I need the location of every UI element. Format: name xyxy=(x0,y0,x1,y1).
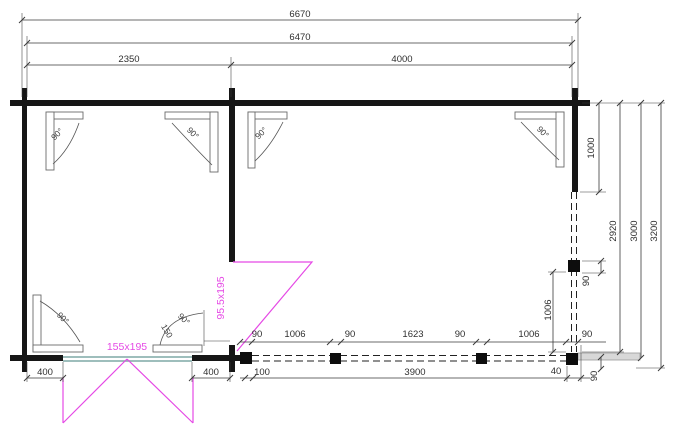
wall-interior-top-stub xyxy=(229,88,235,100)
wall-bottom-a xyxy=(22,355,63,361)
dim-label-edge-40: 40 xyxy=(551,366,562,377)
swing-radius-label: 150 xyxy=(159,322,175,340)
dim-label-depth-2920: 2920 xyxy=(608,220,619,241)
porch-post-corner xyxy=(566,353,578,365)
dim-label-post-90: 90 xyxy=(581,276,592,287)
dim-label-right-room-width: 4000 xyxy=(391,54,412,65)
dim-label-400-left: 400 xyxy=(37,367,53,378)
door-swings xyxy=(63,262,312,423)
deck-edge-bar xyxy=(578,353,640,360)
window-swing-bottom-left xyxy=(33,295,83,352)
dim-label-100: 100 xyxy=(254,367,270,378)
dimension-ticks xyxy=(19,17,664,381)
double-door-swing xyxy=(63,359,193,423)
wall-bottomleft-stub-h xyxy=(10,355,22,361)
door-labels: 155x195 95.5x195 xyxy=(107,276,227,353)
porch-post-right xyxy=(568,260,580,272)
wall-right-top-stub xyxy=(572,88,578,100)
dim-label-right-1006: 1006 xyxy=(543,299,554,320)
window-swing-indicators xyxy=(33,112,564,352)
dim-label-chain-2: 90 xyxy=(345,329,356,340)
porch-posts xyxy=(240,260,580,365)
window-swing-right-room-right xyxy=(515,112,564,167)
dim-label-depth-3200: 3200 xyxy=(649,220,660,241)
dim-label-chain-4: 90 xyxy=(455,329,466,340)
window-swing-left-room-right xyxy=(165,112,218,172)
dim-label-chain-6: 90 xyxy=(582,329,593,340)
porch-post xyxy=(330,353,341,364)
window-swing-right-room-left xyxy=(248,112,287,168)
dim-label-left-room-width: 2350 xyxy=(118,54,139,65)
angle-labels: 90° 90° 90° 90° 90° 90° 150 xyxy=(49,124,551,340)
window-swing-top-left xyxy=(46,112,83,170)
porch-post xyxy=(240,352,252,364)
dimension-lines xyxy=(22,20,661,378)
wall-left xyxy=(22,100,27,361)
dim-label-depth-3000: 3000 xyxy=(629,220,640,241)
dim-label-chain-3: 1623 xyxy=(402,329,423,340)
angle-label-left-room-right: 90° xyxy=(185,125,201,141)
dim-label-chain-1: 1006 xyxy=(284,329,305,340)
dim-label-3900: 3900 xyxy=(404,367,425,378)
floor-plan-drawing: 6670 6470 2350 4000 1000 2920 3000 3200 … xyxy=(0,0,680,430)
wall-bottomleft-stub-v xyxy=(22,361,27,372)
angle-label-right-room-right: 90° xyxy=(535,124,551,140)
double-door-size-label: 155x195 xyxy=(107,341,147,353)
dim-label-right-wall-1000: 1000 xyxy=(586,137,597,158)
angle-label-bottom-left: 90° xyxy=(55,310,71,326)
dim-label-400-right: 400 xyxy=(203,367,219,378)
single-door-size-label: 95.5x195 xyxy=(215,276,227,319)
dim-label-frame-width: 6470 xyxy=(289,32,310,43)
wall-interior-upper xyxy=(229,100,235,262)
dim-label-chain-5: 1006 xyxy=(518,329,539,340)
angle-label-interior-door: 90° xyxy=(176,311,192,327)
dim-label-overall-width: 6670 xyxy=(289,9,310,20)
extension-lines xyxy=(22,13,665,382)
wall-right xyxy=(572,100,578,192)
wall-left-top-stub xyxy=(22,88,27,100)
wall-topleft-stub xyxy=(10,100,22,106)
dim-label-chain-0: 90 xyxy=(252,329,263,340)
wall-top xyxy=(22,100,578,106)
dim-label-edge-90: 90 xyxy=(589,371,600,382)
porch-post xyxy=(476,353,487,364)
